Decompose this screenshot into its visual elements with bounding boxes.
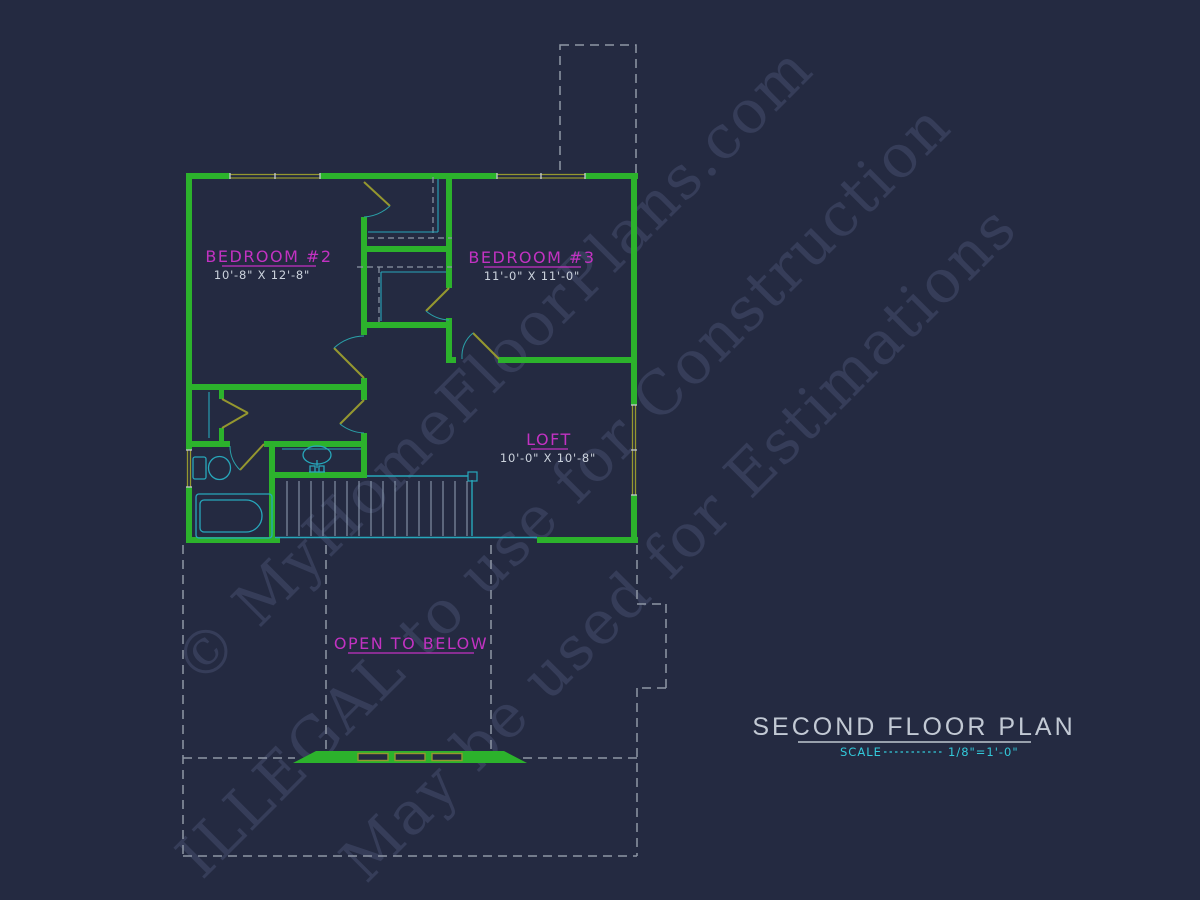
- closet-a-door-leaf: [364, 182, 390, 206]
- bathtub-inner: [200, 500, 262, 532]
- closet-a-door-arc: [364, 206, 390, 217]
- bay-window-glass-1: [358, 754, 388, 761]
- bedroom3-dims: 11'-0" X 11'-0": [484, 269, 580, 283]
- hall-door-arc: [340, 424, 364, 433]
- open-to-below-label: OPEN TO BELOW: [334, 634, 488, 653]
- bedroom2-label: BEDROOM #2: [205, 247, 332, 266]
- bedroom3-window: [497, 173, 585, 179]
- closet-b-door-leaf: [426, 288, 449, 311]
- hall-door-leaf: [340, 400, 364, 424]
- chimney-dashed-outline: [560, 45, 636, 174]
- loft-window: [631, 405, 637, 495]
- watermark-estimations: May be used for Estimations: [327, 192, 1031, 896]
- bedroom2-door-leaf: [334, 348, 364, 378]
- drawing-title: SECOND FLOOR PLAN: [752, 713, 1075, 741]
- floorplan-canvas: © MyHomeFloorPlans.com ILLEGAL to use fo…: [0, 0, 1200, 900]
- bay-window-glass-2: [395, 754, 425, 761]
- floorplan-page: © MyHomeFloorPlans.com ILLEGAL to use fo…: [0, 0, 1200, 900]
- closet-b-door-arc: [426, 311, 449, 320]
- small-closet-double-door-leaves: [222, 399, 248, 428]
- bedroom2-window: [230, 173, 320, 179]
- bay-window-glass-3: [432, 754, 462, 761]
- watermark-illegal: ILLEGAL to use for Construction: [163, 90, 964, 891]
- loft-dims: 10'-0" X 10'-8": [500, 451, 596, 465]
- bay-window: [293, 751, 527, 763]
- bedroom3-label: BEDROOM #3: [468, 248, 595, 267]
- sink-faucet: [309, 460, 325, 472]
- stair-rail-post: [468, 472, 477, 481]
- scale-label: SCALE: [840, 745, 882, 759]
- bedroom2-door-arc: [334, 336, 364, 348]
- bedroom2-dims: 10'-8" X 12'-8": [214, 268, 310, 282]
- toilet-tank: [193, 457, 206, 479]
- bathroom-door-arc: [230, 446, 240, 470]
- bathroom-window: [186, 450, 192, 487]
- bathroom-door-leaf: [240, 444, 264, 470]
- title-block: SECOND FLOOR PLAN SCALE 1/8"=1'-0": [752, 713, 1075, 759]
- loft-label: LOFT: [526, 430, 572, 449]
- toilet-bowl: [209, 457, 231, 480]
- scale-value: 1/8"=1'-0": [948, 745, 1019, 759]
